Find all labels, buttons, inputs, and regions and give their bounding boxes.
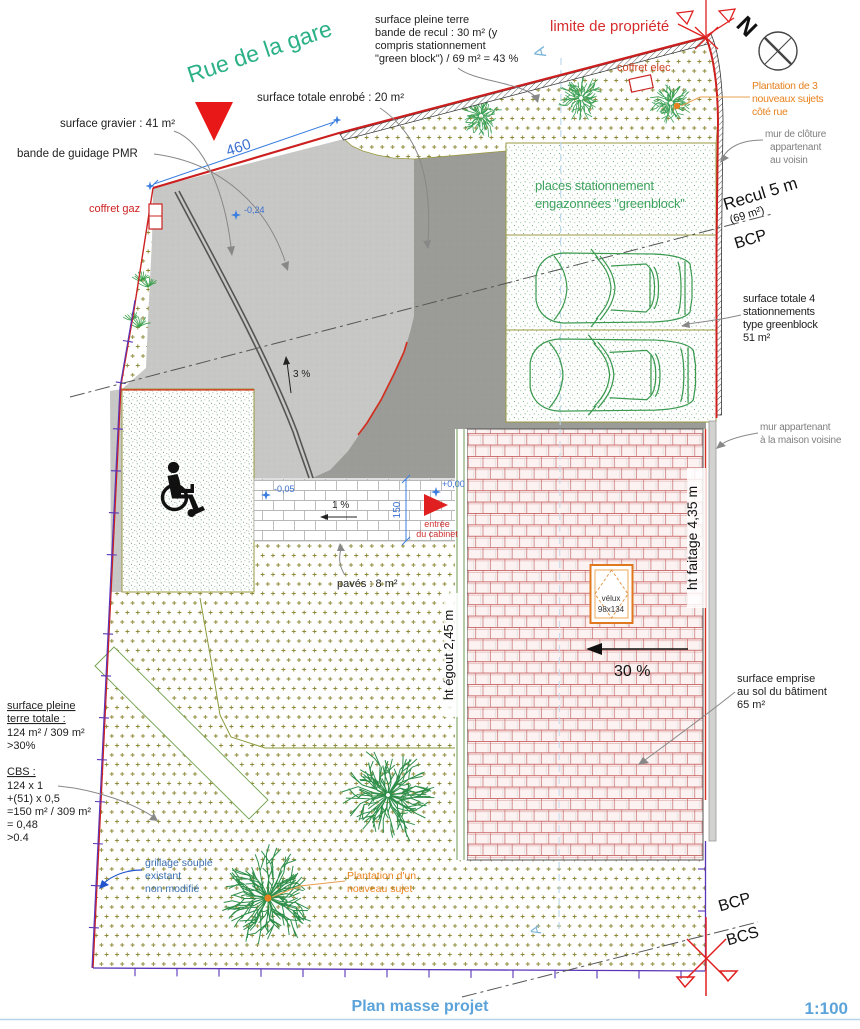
svg-text:places stationnement: places stationnement <box>535 178 654 193</box>
svg-text:surface pleine: surface pleine <box>7 700 76 712</box>
svg-text:65 m²: 65 m² <box>737 699 765 711</box>
svg-text:51 m²: 51 m² <box>743 332 771 344</box>
svg-text:côté rue: côté rue <box>752 106 788 118</box>
svg-text:460: 460 <box>224 136 253 160</box>
svg-text:entrée: entrée <box>424 519 450 529</box>
svg-text:surface totale enrobé : 20 m²: surface totale enrobé : 20 m² <box>257 92 404 104</box>
svg-text:3 %: 3 % <box>293 369 310 380</box>
svg-text:Plantation de 3: Plantation de 3 <box>752 80 818 92</box>
svg-text:mur appartenant: mur appartenant <box>760 422 831 433</box>
svg-text:surface gravier : 41 m²: surface gravier : 41 m² <box>60 118 175 130</box>
svg-text:Plan masse projet: Plan masse projet <box>352 998 490 1015</box>
svg-text:ht faitage 4,35 m: ht faitage 4,35 m <box>684 486 700 590</box>
svg-text:au voisin: au voisin <box>770 155 808 166</box>
svg-text:=150 m² / 309 m²: =150 m² / 309 m² <box>7 806 91 818</box>
svg-text:au sol du bâtiment: au sol du bâtiment <box>737 686 827 698</box>
svg-text:BCP: BCP <box>732 227 768 253</box>
svg-text:surface emprise: surface emprise <box>737 673 815 685</box>
svg-text:CBS :: CBS : <box>7 766 36 778</box>
svg-text:A: A <box>531 44 550 59</box>
svg-text:1:100: 1:100 <box>805 999 848 1018</box>
svg-text:vélux: vélux <box>602 594 621 603</box>
svg-text:124 x 1: 124 x 1 <box>7 780 43 792</box>
svg-text:>30%: >30% <box>7 740 36 752</box>
svg-text:pavés : 8 m²: pavés : 8 m² <box>337 578 398 590</box>
svg-text:BCP: BCP <box>717 890 753 915</box>
svg-text:engazonnées "greenblock": engazonnées "greenblock" <box>535 196 685 211</box>
svg-text:surface totale 4: surface totale 4 <box>743 293 815 305</box>
svg-text:>0.4: >0.4 <box>7 832 29 844</box>
svg-text:limite de propriété: limite de propriété <box>550 18 669 35</box>
svg-text:surface pleine terre: surface pleine terre <box>375 14 469 26</box>
svg-text:1 %: 1 % <box>332 500 349 511</box>
svg-text:nouveau sujet: nouveau sujet <box>347 883 412 895</box>
svg-text:BCS: BCS <box>725 924 761 949</box>
svg-text:98x134: 98x134 <box>598 605 625 614</box>
svg-text:bande de recul : 30 m² (y: bande de recul : 30 m² (y <box>375 27 498 39</box>
svg-text:coffret elec: coffret elec <box>617 62 671 74</box>
svg-text:nouveaux sujets: nouveaux sujets <box>752 93 823 105</box>
svg-text:non modifié: non modifié <box>145 883 199 895</box>
svg-text:+(51) x 0,5: +(51) x 0,5 <box>7 793 60 805</box>
svg-text:bande de guidage PMR: bande de guidage PMR <box>17 148 138 160</box>
svg-text:Rue de la gare: Rue de la gare <box>184 15 335 88</box>
svg-text:124 m² / 309 m²: 124 m² / 309 m² <box>7 727 85 739</box>
svg-text:du cabinet: du cabinet <box>416 529 458 539</box>
svg-text:= 0,48: = 0,48 <box>7 819 38 831</box>
svg-text:Plantation d'un: Plantation d'un <box>347 870 416 882</box>
svg-text:stationnements: stationnements <box>743 306 815 318</box>
svg-text:coffret gaz: coffret gaz <box>89 203 140 215</box>
svg-text:"green block") / 69 m² = 43 %: "green block") / 69 m² = 43 % <box>375 53 518 65</box>
svg-text:150: 150 <box>392 501 403 518</box>
svg-text:terre totale :: terre totale : <box>7 713 66 725</box>
svg-text:grillage souple: grillage souple <box>145 857 213 869</box>
svg-text:mur de clôture: mur de clôture <box>765 129 827 140</box>
svg-text:à la maison voisine: à la maison voisine <box>760 435 842 446</box>
svg-text:30 %: 30 % <box>614 663 650 680</box>
svg-text:-0,05: -0,05 <box>274 484 295 494</box>
svg-text:appartenant: appartenant <box>770 142 822 153</box>
svg-text:type greenblock: type greenblock <box>743 319 818 331</box>
svg-text:existant: existant <box>145 870 181 882</box>
svg-text:ht égout 2,45 m: ht égout 2,45 m <box>441 610 456 700</box>
svg-text:compris stationnement: compris stationnement <box>375 40 486 52</box>
svg-text:+0,00: +0,00 <box>442 479 465 489</box>
svg-text:N: N <box>731 11 762 42</box>
